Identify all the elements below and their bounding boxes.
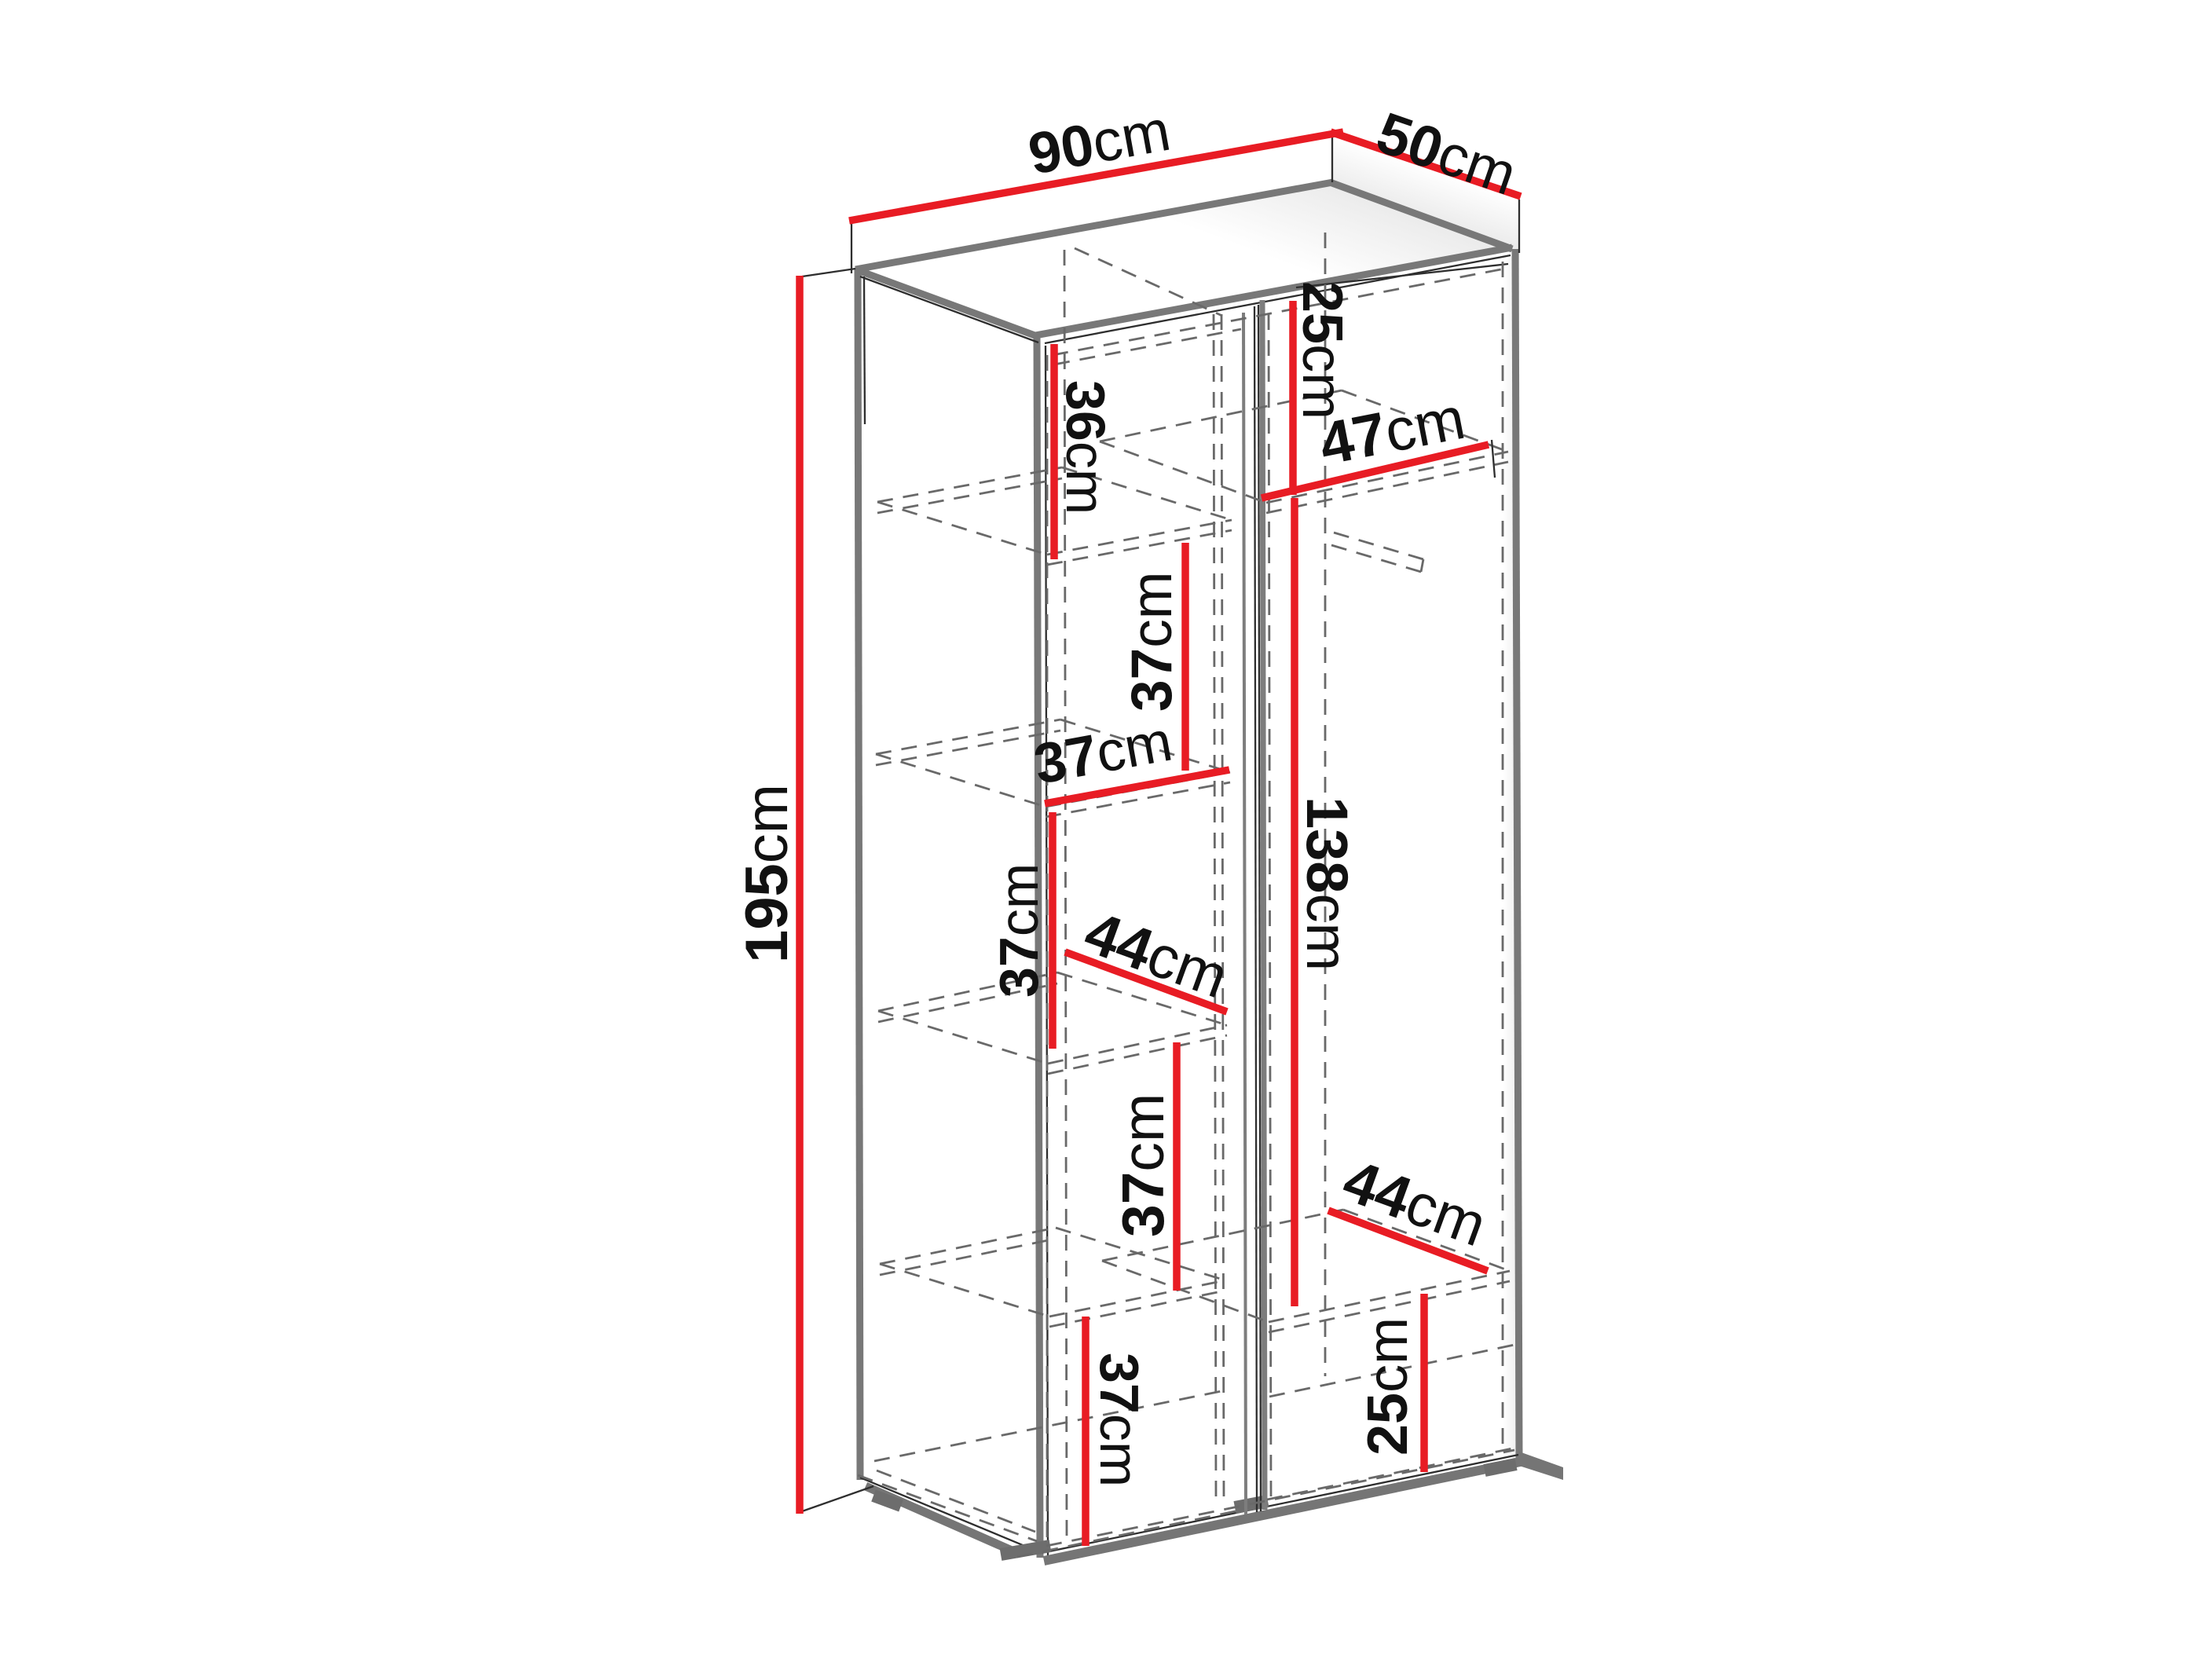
svg-text:37cm: 37cm: [1110, 1093, 1176, 1237]
svg-text:37cm: 37cm: [1120, 571, 1184, 712]
svg-text:37cm: 37cm: [988, 863, 1049, 998]
svg-text:195cm: 195cm: [734, 784, 800, 963]
svg-text:37cm: 37cm: [1089, 1353, 1150, 1487]
svg-text:36cm: 36cm: [1055, 380, 1116, 515]
svg-text:138cm: 138cm: [1295, 797, 1360, 971]
svg-text:25cm: 25cm: [1357, 1317, 1419, 1456]
svg-text:25cm: 25cm: [1291, 281, 1353, 419]
